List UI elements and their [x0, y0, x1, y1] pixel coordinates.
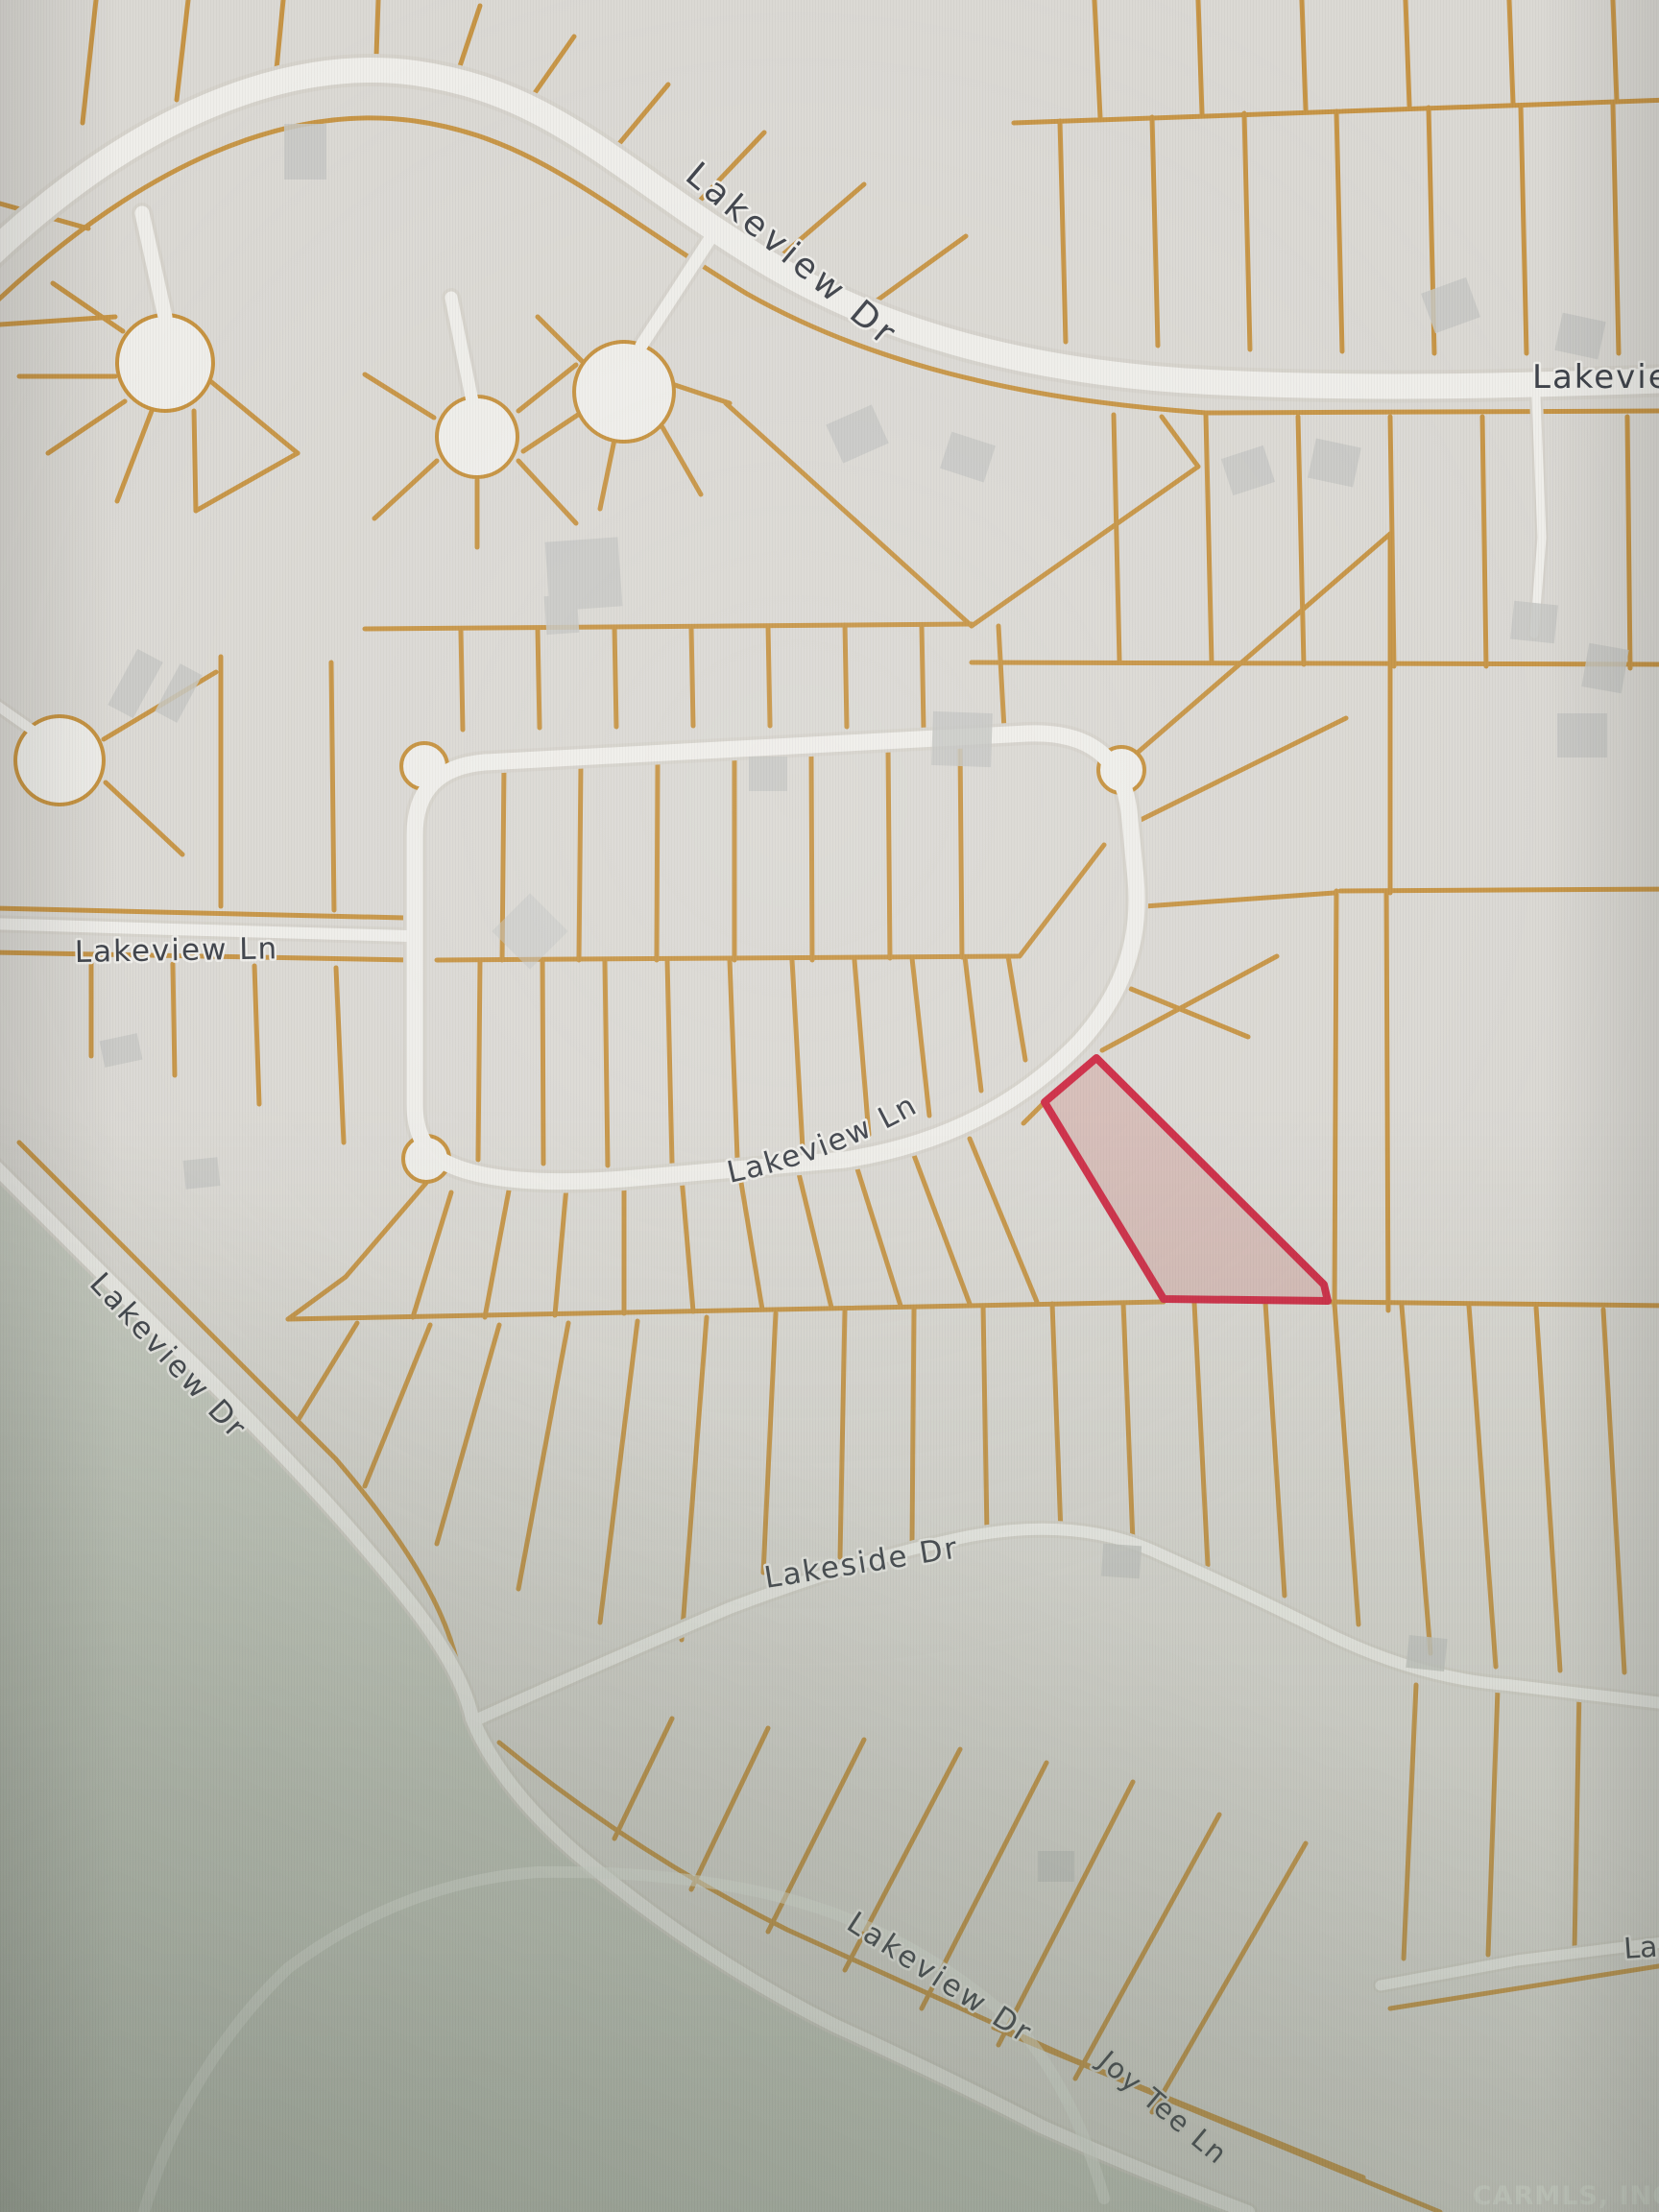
street-label-lakeview-partial-northeast: Lakevie	[1532, 358, 1659, 397]
parcel-map-screenshot: Lakeview Dr Lakevie Lakeview Ln Lakeview…	[0, 0, 1659, 2212]
parcel-map[interactable]: Lakeview Dr Lakevie Lakeview Ln Lakeview…	[0, 0, 1659, 2212]
watermark: CARMLS, INC	[1473, 2181, 1659, 2211]
street-label-lakeview-partial-southeast: La	[1623, 1931, 1658, 1966]
street-label-lakeview-ln-west: Lakeview Ln	[75, 931, 279, 970]
